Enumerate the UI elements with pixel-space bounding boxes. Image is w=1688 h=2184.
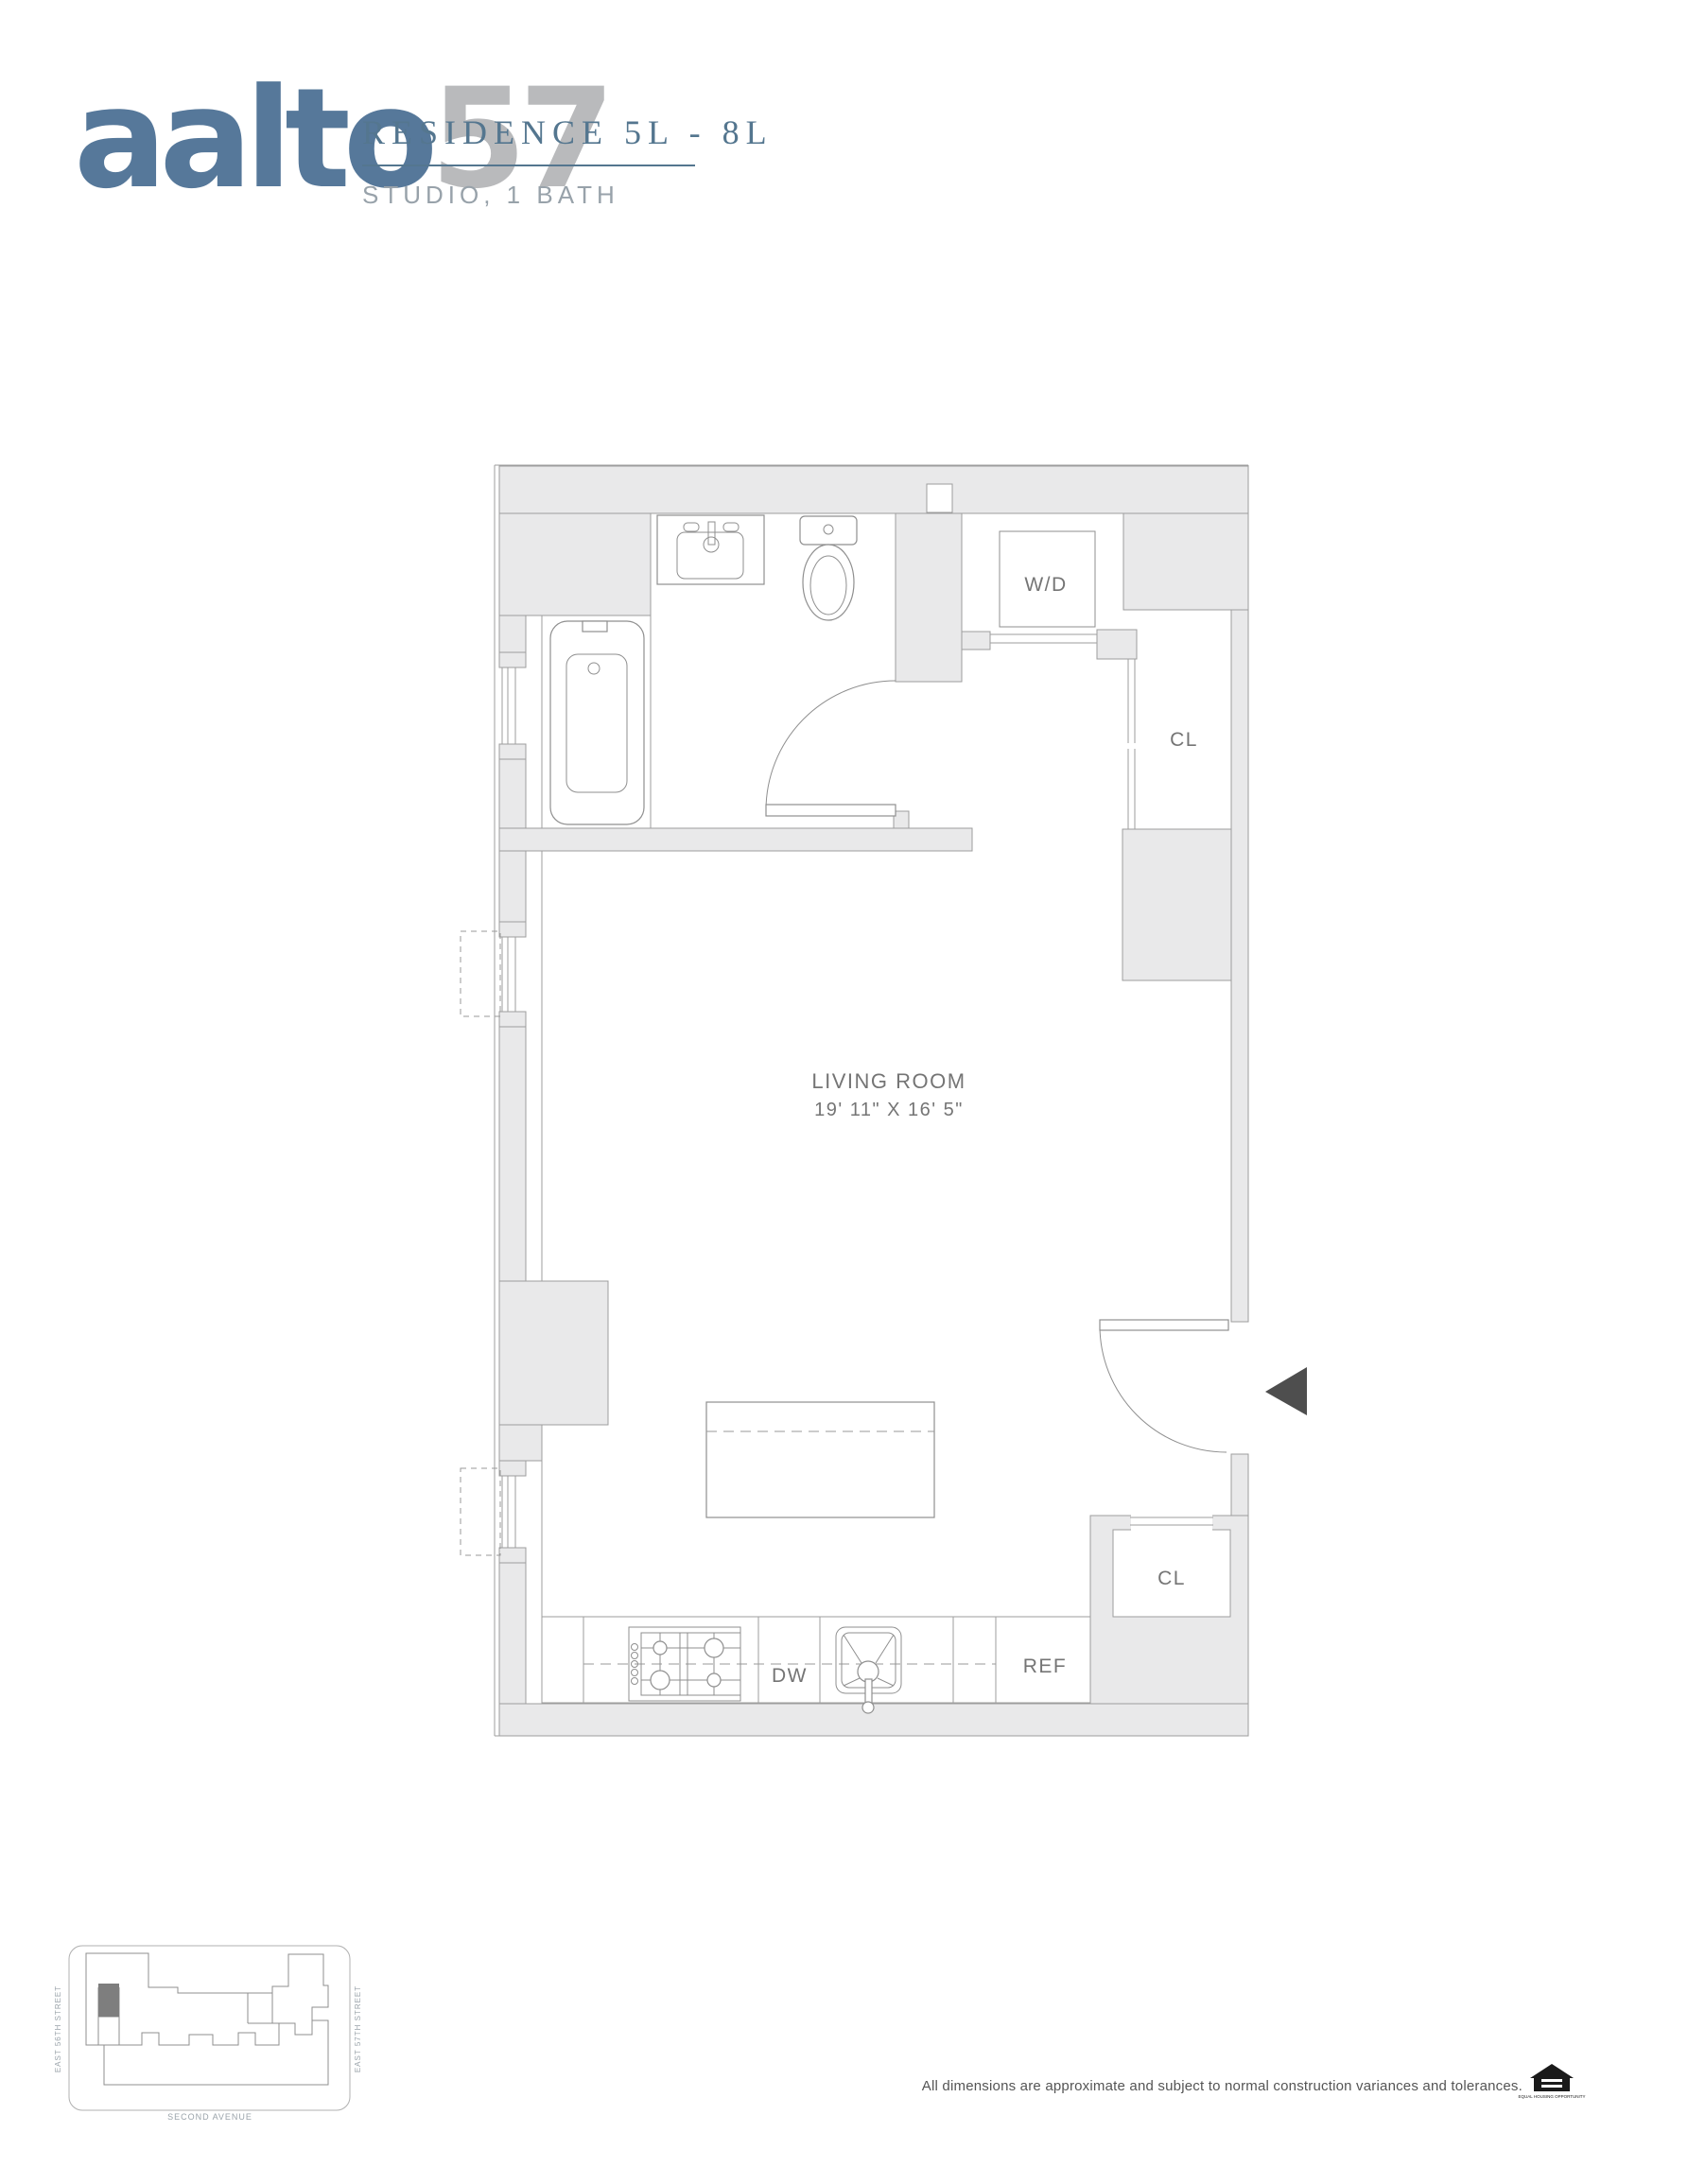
keyplan: EAST 56TH STREET EAST 57TH STREET SECOND… [54, 1946, 362, 2122]
living-room-dimensions: 19' 11" X 16' 5" [814, 1100, 964, 1120]
disclaimer-text: All dimensions are approximate and subje… [804, 2078, 1523, 2094]
washer-dryer-closet: W/D [990, 531, 1097, 643]
entry-door [1100, 1320, 1307, 1452]
window-bay-1 [499, 652, 526, 759]
window-bay-3 [461, 1461, 526, 1563]
bathtub [550, 621, 644, 824]
floorplan-page: aalto57 RESIDENCE 5L - 8L STUDIO, 1 BATH [0, 0, 1688, 2184]
closet-top: CL [1128, 659, 1198, 829]
toilet [800, 516, 857, 620]
bathroom-sink [657, 515, 764, 584]
entry-arrow-icon [1265, 1367, 1307, 1415]
closet-bottom-label: CL [1157, 1568, 1186, 1589]
kitchen-island [706, 1402, 934, 1517]
dishwasher-label: DW [772, 1665, 808, 1687]
kitchen-counter: DW REF [542, 1617, 1093, 1713]
equal-housing-label: EQUAL HOUSING OPPORTUNITY [1518, 2094, 1585, 2099]
living-room-label: LIVING ROOM [811, 1069, 966, 1093]
floorplan-drawing: W/D CL LIVING ROOM 19' 11" X 16' 5" [0, 0, 1688, 2184]
equal-housing-icon: EQUAL HOUSING OPPORTUNITY [1518, 2064, 1585, 2099]
closet-bottom: CL [1090, 1512, 1248, 1704]
refrigerator-label: REF [1023, 1655, 1068, 1677]
washer-dryer-label: W/D [1024, 574, 1067, 596]
keyplan-building-outline [86, 1953, 328, 2085]
living-room: LIVING ROOM 19' 11" X 16' 5" [811, 1069, 966, 1120]
window-bay-2 [461, 922, 526, 1027]
bathroom-door [766, 681, 896, 816]
keyplan-highlighted-unit [98, 1984, 119, 2017]
keyplan-street-left: EAST 56TH STREET [54, 1985, 62, 2072]
keyplan-street-bottom: SECOND AVENUE [167, 2112, 252, 2122]
closet-top-label: CL [1170, 729, 1198, 751]
keyplan-street-right: EAST 57TH STREET [354, 1985, 362, 2072]
